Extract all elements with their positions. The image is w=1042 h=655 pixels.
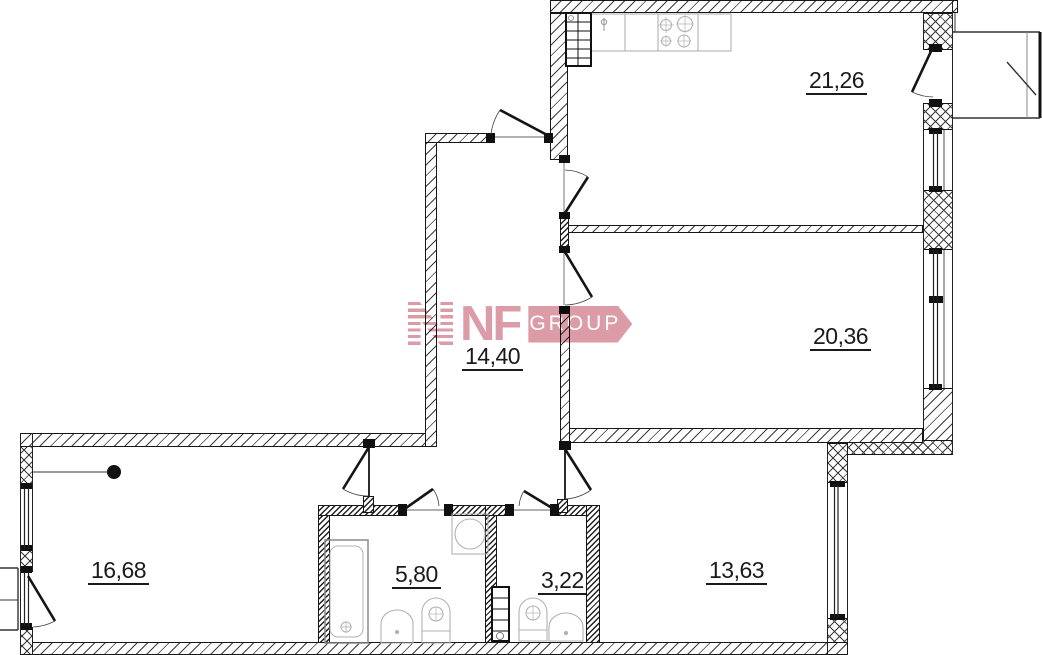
kitchen-stove-icon [658, 15, 694, 48]
bath-toilet-icon [422, 598, 450, 643]
nf-group-logo: NF GROUP [408, 300, 633, 348]
bath-sink-icon [381, 610, 413, 643]
kitchen-counter [588, 14, 731, 51]
bath-vent-shaft [492, 587, 509, 641]
room2036-door [565, 252, 592, 305]
nf-group-logo-banner: GROUP [528, 306, 632, 343]
left-balcony-basket [0, 568, 18, 630]
bathtub-icon [325, 540, 368, 643]
wc-door [519, 491, 552, 508]
window-kitchen [934, 130, 945, 190]
nf-group-logo-mark-icon [408, 302, 453, 346]
floor-plan: 21,26 20,36 14,40 16,68 5,80 3,22 13,63 … [0, 0, 1042, 655]
kitchen-balcony-door [912, 47, 933, 97]
washing-machine-icon [452, 514, 488, 554]
room1363-door [565, 449, 591, 499]
kitchen-sink-faucet-icon [601, 18, 606, 31]
wc-sink-icon [549, 613, 583, 641]
window-room1668 [25, 488, 29, 549]
window-room1363 [835, 484, 839, 617]
balcony-top-right [953, 13, 1040, 118]
reference-point-marker [33, 465, 121, 479]
room1668-door [343, 447, 369, 496]
window-room2036 [934, 250, 945, 388]
kitchen-vent-shaft [566, 13, 591, 66]
kitchen-door [565, 170, 588, 213]
wc-toilet-icon [519, 598, 547, 641]
left-balcony-door-glazing [25, 573, 29, 626]
entrance-door [491, 110, 549, 136]
left-balcony-door [28, 576, 55, 627]
nf-group-logo-name: NF [460, 302, 519, 346]
bath-door [406, 489, 439, 508]
